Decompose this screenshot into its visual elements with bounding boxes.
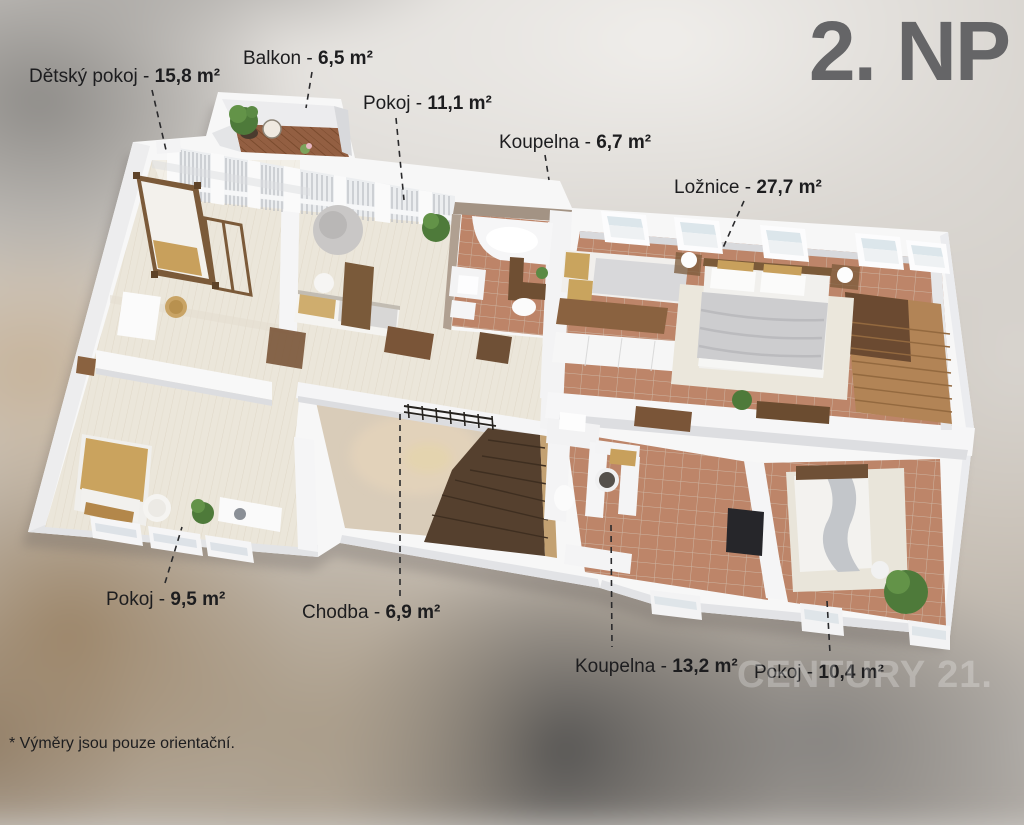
svg-text:Pokoj - 11,1 m²: Pokoj - 11,1 m² xyxy=(363,93,492,114)
svg-text:* Výměry jsou pouze orientační: * Výměry jsou pouze orientační. xyxy=(9,735,235,752)
svg-text:2. NP: 2. NP xyxy=(809,4,1009,98)
svg-text:Dětský pokoj - 15,8 m²: Dětský pokoj - 15,8 m² xyxy=(29,66,220,87)
svg-text:Koupelna - 6,7 m²: Koupelna - 6,7 m² xyxy=(499,132,651,153)
svg-text:Pokoj - 9,5 m²: Pokoj - 9,5 m² xyxy=(106,589,225,610)
svg-text:Balkon - 6,5 m²: Balkon - 6,5 m² xyxy=(243,48,373,69)
svg-text:Koupelna - 13,2 m²: Koupelna - 13,2 m² xyxy=(575,656,738,677)
svg-text:Chodba - 6,9 m²: Chodba - 6,9 m² xyxy=(302,602,440,623)
svg-text:CENTURY 21.: CENTURY 21. xyxy=(737,654,993,696)
svg-text:Ložnice - 27,7 m²: Ložnice - 27,7 m² xyxy=(674,177,822,198)
